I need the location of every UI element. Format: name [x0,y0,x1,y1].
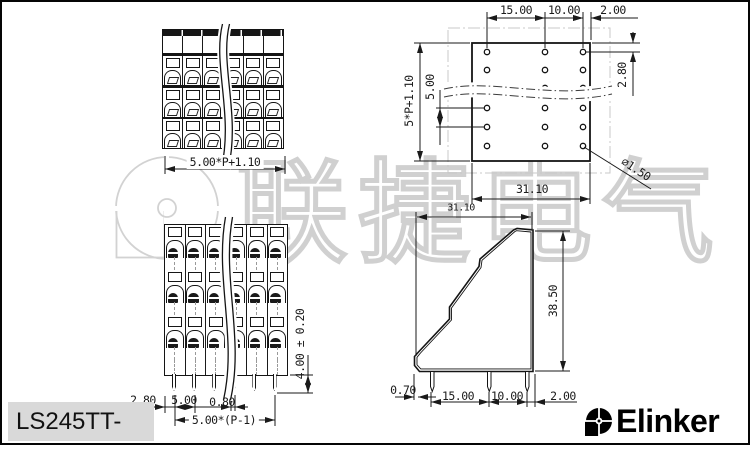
solder-hole [484,49,489,54]
solder-hole [542,105,547,110]
dim-side-pin-pitch2: 10.00 [491,389,523,403]
dim-plan-row-pitch: 5.00 [423,74,437,100]
dim-fb-pin-pitch: 5.00 [171,393,197,407]
dim-fb-pin-span: 5.00*(P-1) [189,413,259,427]
linework-layer [0,0,750,450]
solder-hole [484,105,489,110]
solder-hole [580,67,585,72]
technical-drawing-canvas: 联捷电气 [0,0,750,450]
dim-fb-pin-width: 0.80 [209,395,235,409]
product-label: LS245TT-5.0 [8,402,154,450]
solder-hole [542,67,547,72]
solder-hole [542,143,547,148]
side-view-body [415,229,534,372]
dim-side-width: 31.10 [447,203,475,214]
solder-hole [542,49,547,54]
dim-side-pin-edge: 2.00 [550,389,576,403]
dim-side-pin-pitch1: 15.00 [442,389,474,403]
solder-hole [580,49,585,54]
solder-pin [526,372,530,392]
solder-hole [542,124,547,129]
brand-logo: Elinker [584,403,744,443]
solder-hole [484,124,489,129]
dim-side-wall: 0.70 [390,383,416,397]
dim-plan-edge: 2.00 [600,3,626,17]
dim-front-top-width: 5.00*P+1.10 [187,155,264,169]
dim-plan-col-pitch: 15.00 [500,3,532,17]
dim-side-height: 38.50 [546,285,560,317]
dim-plan-row-edge: 2.80 [615,62,629,88]
solder-hole [484,67,489,72]
solder-hole [580,124,585,129]
dim-plan-col-gap: 10.00 [548,3,580,17]
dim-plan-width: 31.10 [516,182,548,196]
solder-hole [484,143,489,148]
dim-plan-height: 5*P+1.10 [402,75,416,126]
dim-fb-pin-length: 4.00 ± 0.20 [293,309,307,380]
solder-hole [580,105,585,110]
brand-name: Elinker [616,403,719,440]
solder-pin [431,372,435,392]
product-label-box: LS245TT-5.0 [8,402,154,441]
brand-logo-icon [584,403,614,441]
